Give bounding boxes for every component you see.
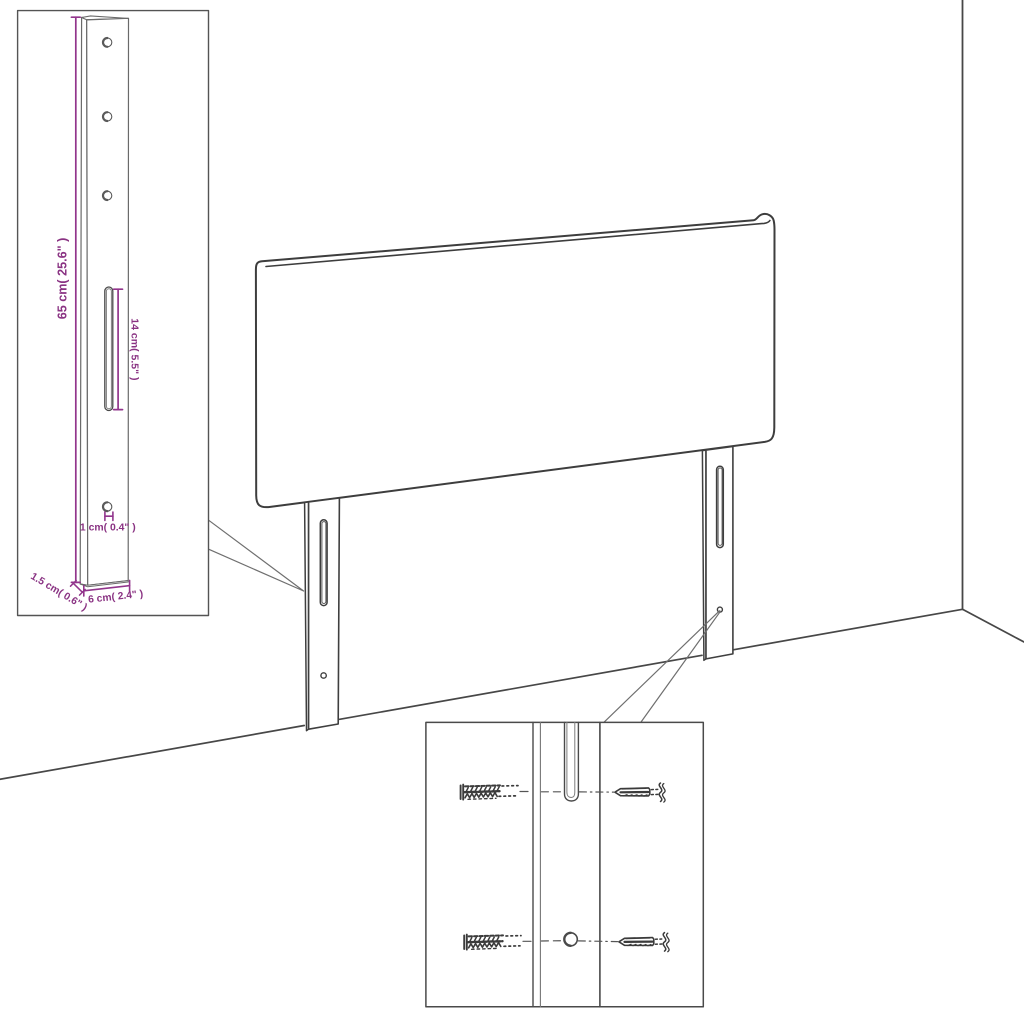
svg-text:14 cm( 5.5" ): 14 cm( 5.5" ) — [129, 318, 141, 380]
svg-text:65 cm( 25.6" ): 65 cm( 25.6" ) — [56, 238, 70, 320]
svg-text:1 cm( 0.4" ): 1 cm( 0.4" ) — [80, 523, 136, 534]
